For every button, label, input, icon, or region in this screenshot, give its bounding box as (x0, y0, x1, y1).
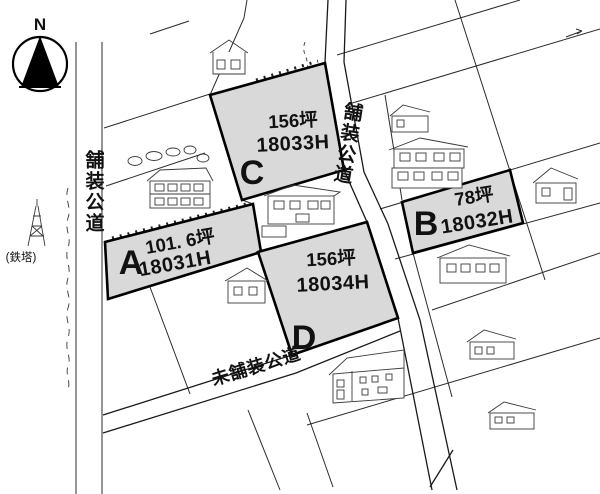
house-icon (390, 105, 430, 132)
parcel-d-letter: D (292, 319, 317, 357)
parcel-b-letter: B (414, 205, 439, 243)
house-icon (147, 168, 213, 208)
compass-icon (13, 36, 67, 91)
parcel-c-code: 18033H (256, 131, 330, 157)
house-icon (488, 402, 536, 429)
compass-north-label: N (34, 15, 46, 34)
house-icon (225, 268, 268, 303)
house-icon (437, 245, 510, 283)
tower-label: (鉄塔) (6, 250, 37, 264)
house-icon (262, 185, 340, 237)
parcel-d-code: 18034H (296, 271, 370, 297)
parcel-d-area: 156坪 (306, 247, 357, 271)
house-icon (210, 40, 248, 74)
parcel-c-area: 156坪 (268, 109, 319, 133)
road-label-left-paved: 舗装公道 (83, 149, 106, 234)
house-icon (389, 138, 468, 188)
tower-icon (28, 199, 45, 246)
ditch-squiggle (67, 188, 69, 390)
parcel-c-letter: C (240, 154, 265, 192)
road-label-unpaved: 未舗装公道 (209, 343, 303, 389)
barn-icon (329, 350, 404, 403)
cadastral-map: N (鉄塔) 舗装公道 舗装公道 未舗装公道 A 101. 6坪 18031H … (0, 0, 600, 494)
house-icon (533, 168, 578, 203)
house-icon (467, 330, 516, 359)
